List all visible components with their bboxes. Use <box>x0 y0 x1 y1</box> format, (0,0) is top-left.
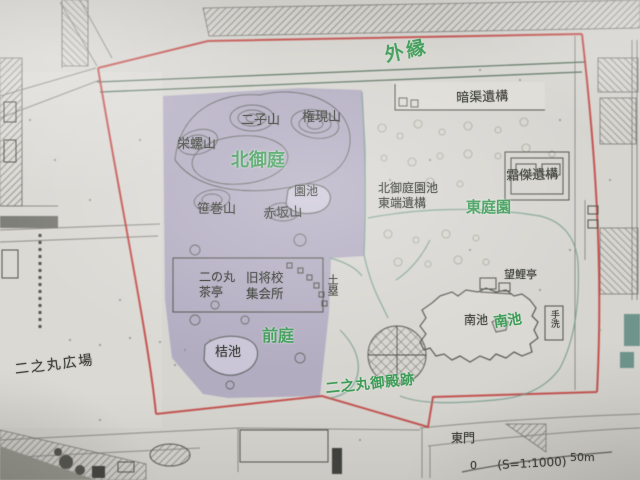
label-kitsu-ike: 桔池 <box>215 346 241 360</box>
label-dorui: 土塁 <box>326 274 338 296</box>
label-officers-hall: 旧将校 集会所 <box>246 270 284 301</box>
label-bogitei: 望鯉亭 <box>504 269 537 281</box>
map-sign-photo: 外縁 暗渠遺構 二子山 権現山 栄螺山 北御庭 園池 笹巻山 赤坂山 北御庭園池… <box>0 0 640 480</box>
label-pond-east-end-line1: 北御庭園池 <box>378 181 438 195</box>
label-soketsu-remains: 霜傑遺構 <box>506 168 558 184</box>
label-pond-east-end-remains: 北御庭園池 東端遺構 <box>378 181 438 211</box>
label-pond-east-end-line2: 東端遺構 <box>378 196 426 210</box>
label-gongenyama: 権現山 <box>302 111 341 125</box>
label-ninomaru-chatei-line2: 茶亭 <box>199 285 223 299</box>
label-akasakayama: 赤坂山 <box>263 206 303 222</box>
scale-zero: 0 <box>470 460 477 472</box>
label-zentei: 前庭 <box>262 327 294 345</box>
label-ninomaru-chatei-line1: 二の丸 <box>199 270 235 284</box>
label-futagoyama: 二子山 <box>241 114 280 128</box>
label-tearai: 手洗 <box>548 310 558 328</box>
map-linework <box>0 0 640 480</box>
label-officers-hall-line2: 集会所 <box>246 286 284 301</box>
label-higashi-teien: 東庭園 <box>466 199 511 216</box>
label-sazaeyama: 栄螺山 <box>177 138 216 152</box>
scale-distance: 50m <box>570 452 595 464</box>
label-kita-oniwa: 北御庭 <box>231 151 285 171</box>
label-culvert-remains: 暗渠遺構 <box>456 90 508 106</box>
label-ninomaru-chatei: 二の丸 茶亭 <box>199 270 235 300</box>
label-officers-hall-line1: 旧将校 <box>246 270 284 285</box>
label-enchi: 園池 <box>294 185 318 198</box>
label-higashi-mon: 東門 <box>451 432 475 445</box>
label-sasamakiyama: 笹巻山 <box>197 203 236 217</box>
label-minami-ike: 南池 <box>464 314 488 327</box>
